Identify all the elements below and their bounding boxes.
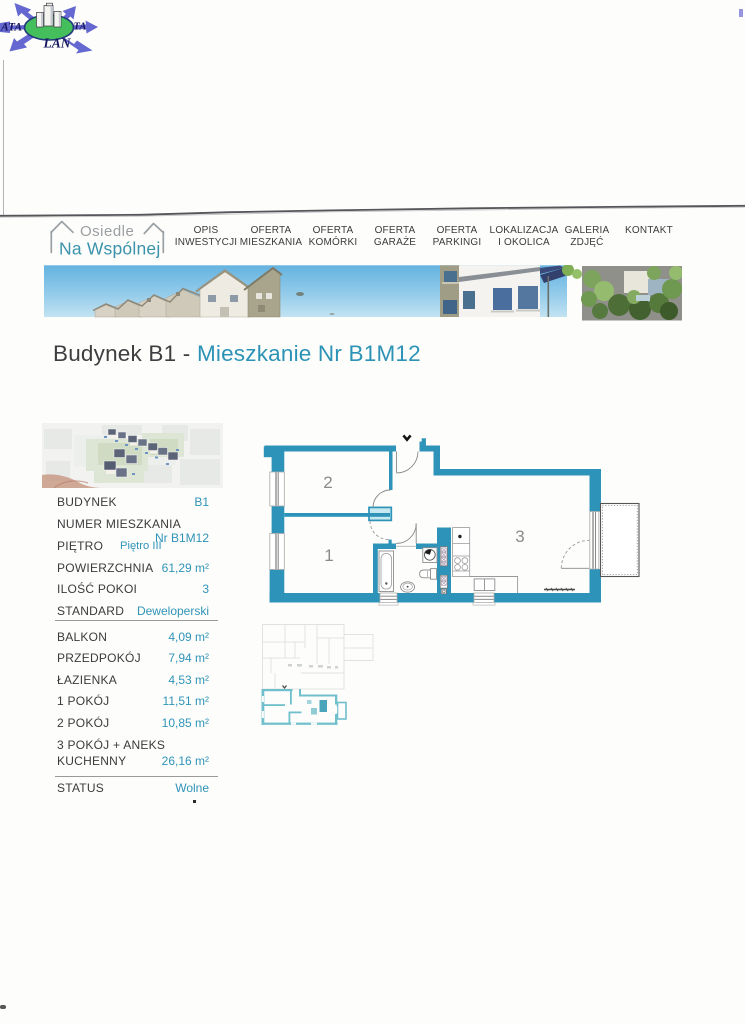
svg-text:ATA: ATA	[0, 22, 22, 34]
svg-text:Osiedle: Osiedle	[80, 223, 134, 240]
svg-text:3: 3	[515, 527, 524, 546]
svg-text:LAN: LAN	[43, 36, 72, 51]
svg-text:TA: TA	[74, 22, 87, 33]
svg-text:Na Wspólnej: Na Wspólnej	[59, 239, 160, 259]
svg-text:1: 1	[324, 546, 333, 565]
svg-text:2: 2	[323, 473, 332, 492]
